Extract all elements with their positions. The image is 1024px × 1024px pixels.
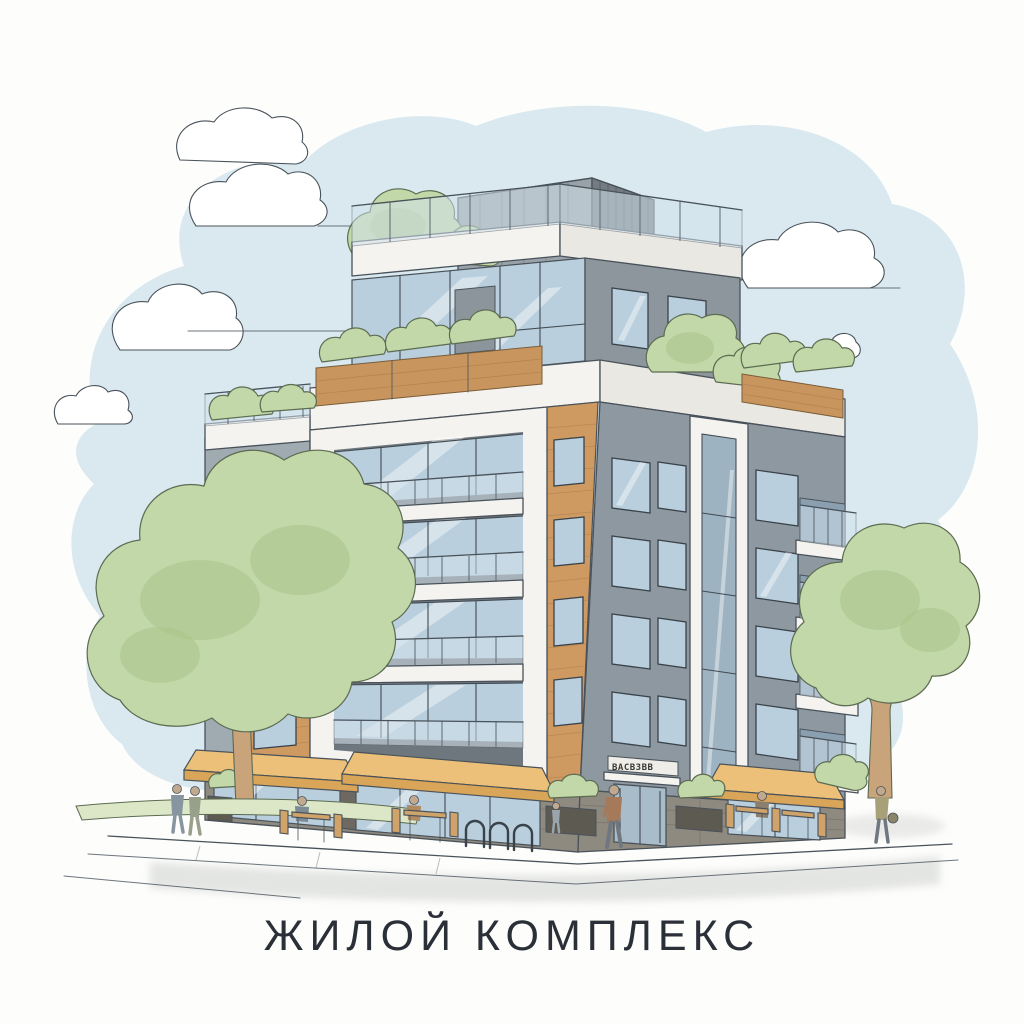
bag [888, 813, 898, 823]
entrance-sign: ВАСВЗВВ [612, 763, 654, 773]
cafe-patron-mid [410, 796, 419, 805]
cloud-upper-left [189, 164, 327, 226]
cloud-top-left [177, 108, 308, 164]
cafe-patron-left [298, 797, 307, 806]
illustration: ВАСВЗВВ [0, 0, 1024, 1024]
poster: ВАСВЗВВ [0, 0, 1024, 1024]
cafe-patron-right [758, 792, 767, 801]
poster-title: ЖИЛОЙ КОМПЛЕКС [264, 911, 760, 960]
cloud-small-left [54, 386, 132, 424]
title-block: ЖИЛОЙ КОМПЛЕКС [264, 911, 760, 960]
